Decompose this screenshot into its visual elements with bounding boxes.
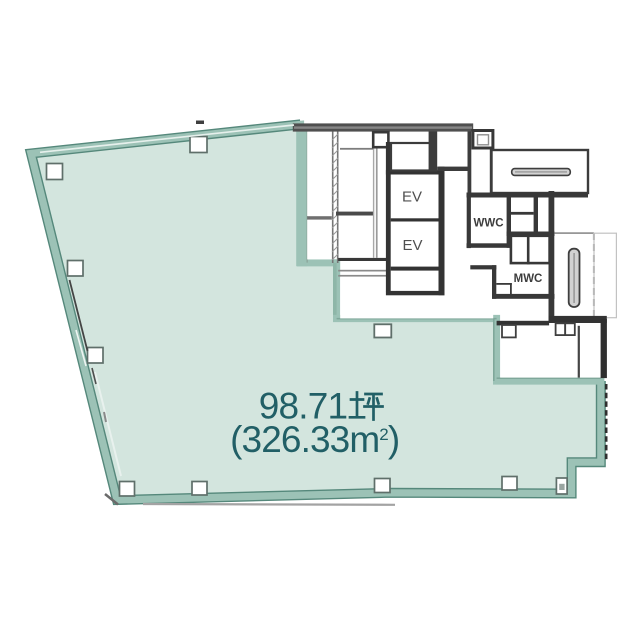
svg-text:WWC: WWC	[473, 218, 503, 230]
svg-text:(326.33m2): (326.33m2)	[230, 419, 399, 460]
svg-text:EV: EV	[402, 189, 422, 206]
svg-text:MWC: MWC	[514, 273, 543, 285]
svg-text:EV: EV	[402, 237, 422, 254]
